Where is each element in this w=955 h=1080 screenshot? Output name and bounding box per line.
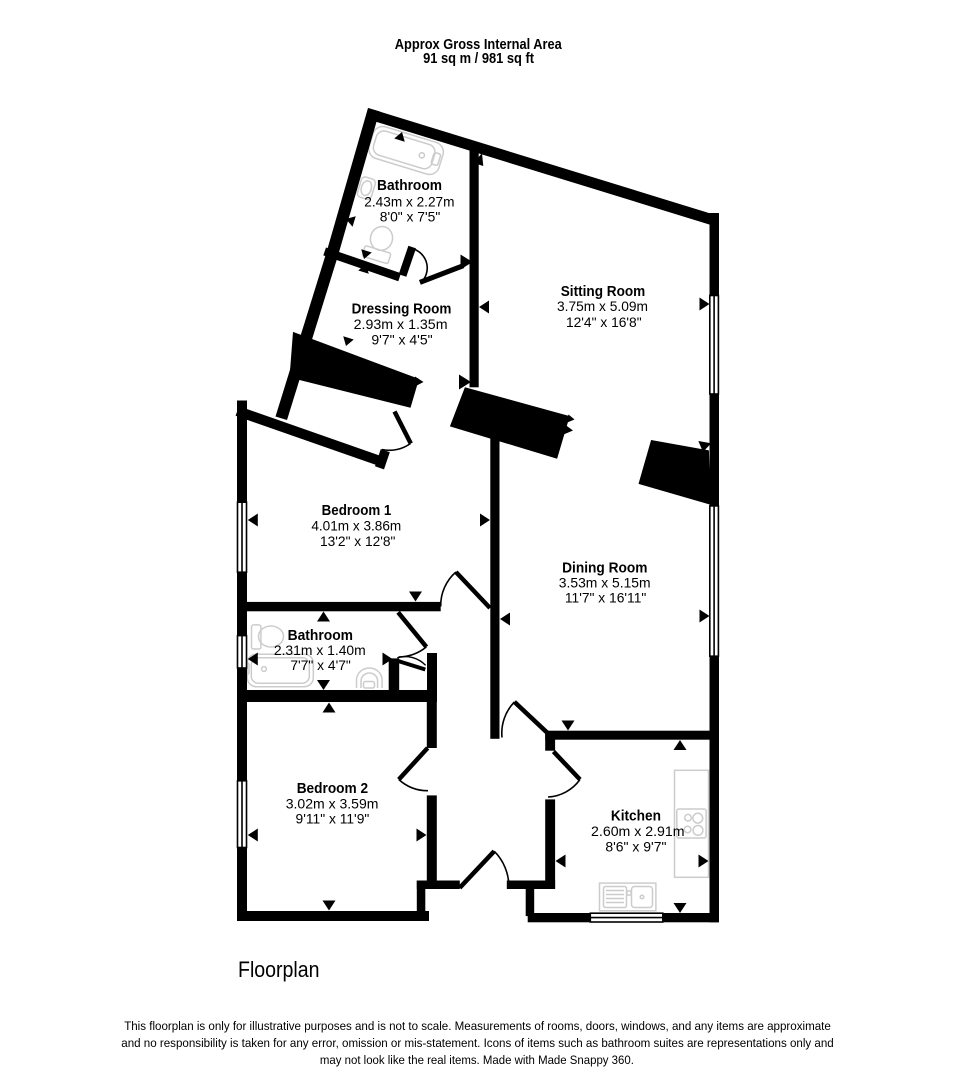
svg-text:and no responsibility is taken: and no responsibility is taken for any e… <box>121 1036 834 1050</box>
svg-text:2.93m x 1.35m: 2.93m x 1.35m <box>354 316 448 332</box>
svg-text:Floorplan: Floorplan <box>238 957 320 982</box>
svg-text:This floorplan is only for ill: This floorplan is only for illustrative … <box>124 1019 831 1033</box>
svg-text:Bathroom: Bathroom <box>377 178 442 194</box>
svg-text:3.02m x 3.59m: 3.02m x 3.59m <box>286 795 379 811</box>
svg-text:12'4" x 16'8": 12'4" x 16'8" <box>566 314 642 330</box>
svg-text:3.53m x 5.15m: 3.53m x 5.15m <box>559 575 651 591</box>
svg-text:11'7" x 16'11": 11'7" x 16'11" <box>565 590 646 606</box>
svg-text:2.31m x 1.40m: 2.31m x 1.40m <box>274 642 366 658</box>
svg-text:91 sq m / 981 sq ft: 91 sq m / 981 sq ft <box>423 51 534 67</box>
svg-text:13'2" x 12'8": 13'2" x 12'8" <box>320 533 395 549</box>
svg-text:8'0" x 7'5": 8'0" x 7'5" <box>380 209 441 225</box>
svg-text:9'7" x 4'5": 9'7" x 4'5" <box>371 332 432 348</box>
svg-text:9'11" x 11'9": 9'11" x 11'9" <box>296 810 370 826</box>
svg-text:may not look like the real ite: may not look like the real items. Made w… <box>320 1053 634 1067</box>
svg-text:7'7" x 4'7": 7'7" x 4'7" <box>290 657 351 673</box>
svg-text:2.60m x 2.91m: 2.60m x 2.91m <box>591 823 685 839</box>
svg-text:2.43m x 2.27m: 2.43m x 2.27m <box>364 193 454 209</box>
svg-text:Dressing Room: Dressing Room <box>352 301 452 317</box>
svg-text:3.75m x 5.09m: 3.75m x 5.09m <box>557 298 648 314</box>
svg-text:8'6" x 9'7": 8'6" x 9'7" <box>605 838 666 854</box>
svg-text:4.01m x 3.86m: 4.01m x 3.86m <box>311 518 401 534</box>
